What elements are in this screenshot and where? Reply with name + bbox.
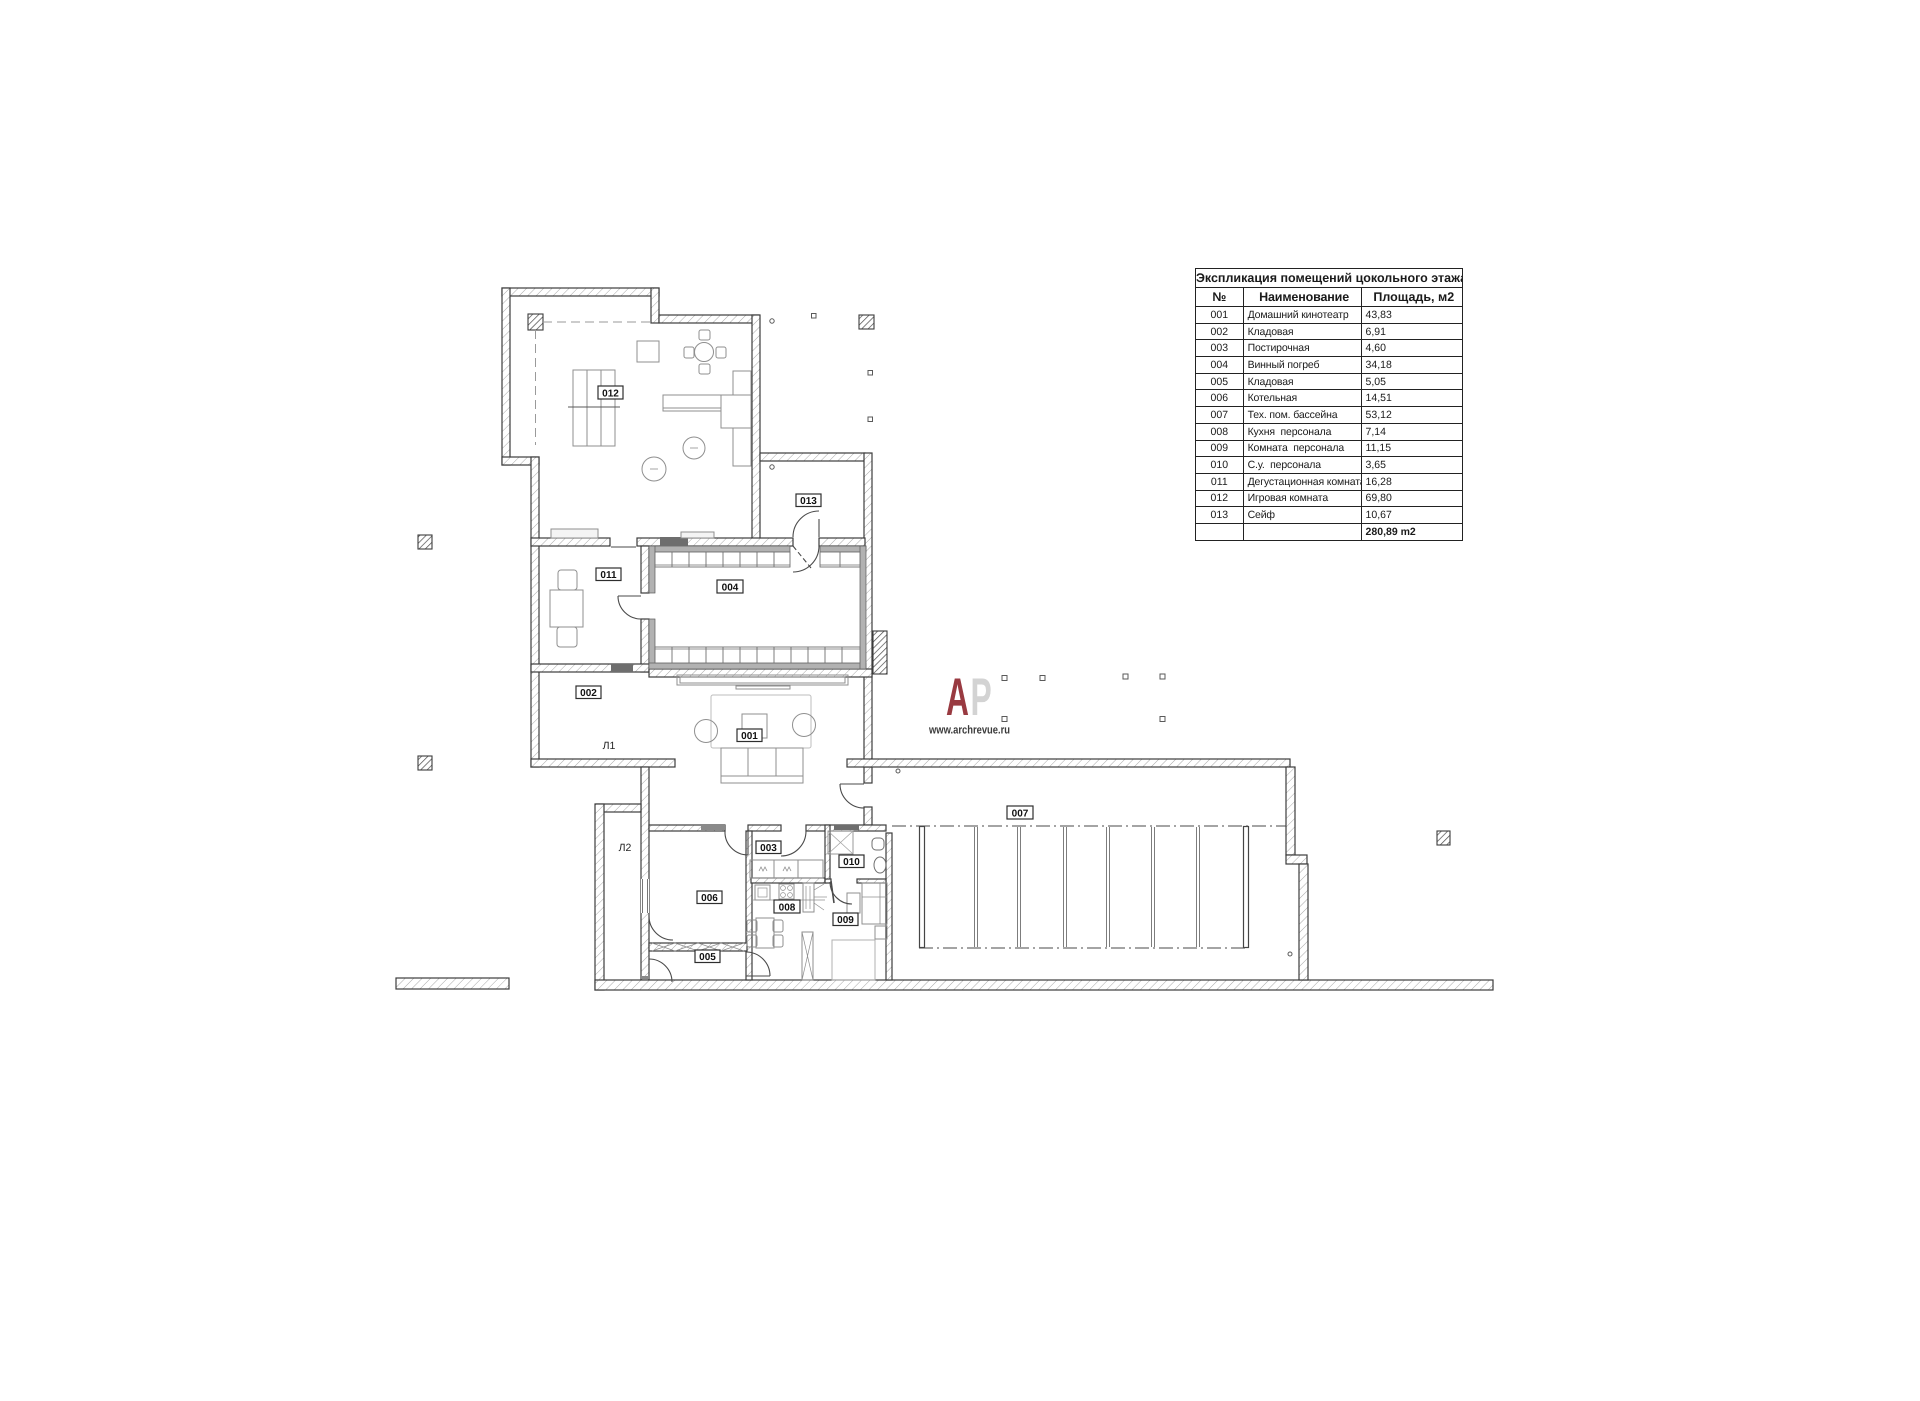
- svg-text:004: 004: [722, 583, 739, 594]
- svg-text:www.archrevue.ru: www.archrevue.ru: [928, 725, 1010, 737]
- svg-text:Л2: Л2: [619, 842, 632, 854]
- svg-text:001: 001: [741, 731, 758, 742]
- svg-text:003: 003: [760, 843, 777, 854]
- svg-text:012: 012: [602, 389, 619, 400]
- svg-text:Р: Р: [971, 668, 992, 727]
- svg-text:А: А: [946, 668, 969, 727]
- svg-text:009: 009: [837, 915, 854, 926]
- svg-text:Л1: Л1: [603, 740, 616, 752]
- svg-text:002: 002: [580, 688, 597, 699]
- svg-text:008: 008: [779, 903, 796, 914]
- svg-text:006: 006: [701, 893, 718, 904]
- svg-text:010: 010: [843, 857, 860, 868]
- svg-text:005: 005: [699, 952, 716, 963]
- svg-text:007: 007: [1012, 809, 1029, 820]
- svg-text:011: 011: [600, 570, 617, 581]
- svg-text:013: 013: [800, 496, 817, 507]
